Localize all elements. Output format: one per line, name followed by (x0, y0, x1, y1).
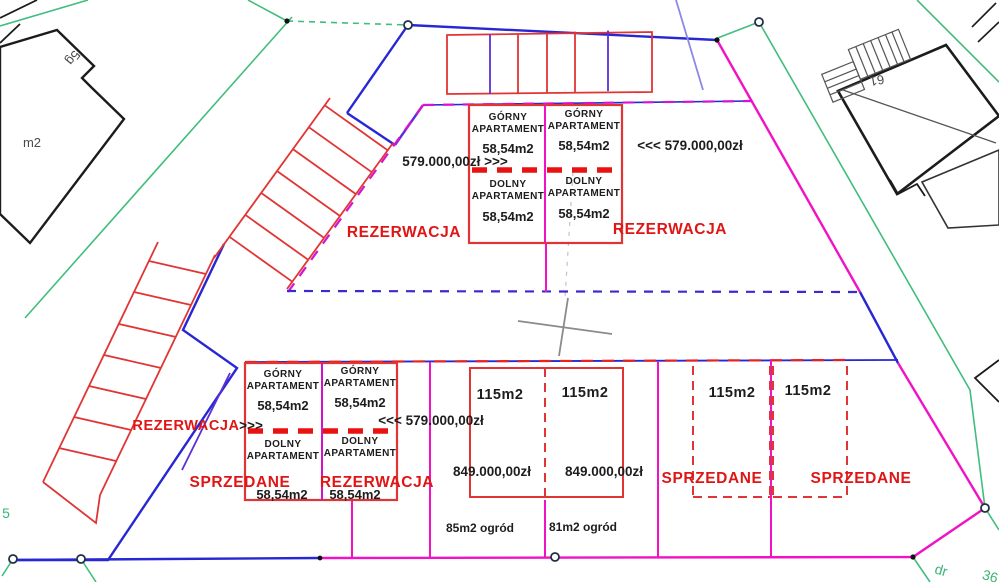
left-building-label: 5g (63, 48, 84, 69)
svg-text:APARTAMENT: APARTAMENT (548, 188, 621, 199)
svg-text:58,54m2: 58,54m2 (257, 398, 308, 413)
svg-text:GÓRNY: GÓRNY (565, 107, 604, 120)
svg-text:GÓRNY: GÓRNY (489, 110, 528, 123)
svg-text:APARTAMENT: APARTAMENT (324, 378, 397, 389)
row-house-plot2: 115m2 849.000,00zł 81m2 ogród (549, 385, 643, 534)
svg-text:GÓRNY: GÓRNY (264, 367, 303, 380)
svg-text:58,54m2: 58,54m2 (558, 138, 609, 153)
svg-text:APARTAMENT: APARTAMENT (548, 121, 621, 132)
site-plan-svg: 5g m2 61 5 dr 36 GÓRNY APARTAMENT 58,54m… (0, 0, 999, 582)
svg-text:DOLNY: DOLNY (490, 179, 527, 190)
svg-text:115m2: 115m2 (562, 385, 609, 401)
row-house-plot3: 115m2 SPRZEDANE (662, 385, 763, 487)
parcel-number-left: 5 (2, 505, 10, 521)
upper-duplex-left-unit: GÓRNY APARTAMENT 58,54m2 DOLNY APARTAMEN… (347, 110, 544, 241)
svg-text:APARTAMENT: APARTAMENT (324, 448, 397, 459)
svg-text:115m2: 115m2 (709, 385, 756, 401)
row-house-plot1: 115m2 849.000,00zł 85m2 ogród (446, 387, 531, 535)
svg-text:DOLNY: DOLNY (566, 176, 603, 187)
svg-text:58,54m2: 58,54m2 (334, 395, 385, 410)
neighbour-building-left (0, 0, 124, 243)
parcel-number-bottom: 36 (981, 566, 999, 582)
svg-text:SPRZEDANE: SPRZEDANE (811, 470, 912, 487)
lower-duplex-left-status-label: REZERWACJA (132, 418, 239, 434)
svg-text:APARTAMENT: APARTAMENT (247, 381, 320, 392)
svg-text:85m2 ogród: 85m2 ogród (446, 521, 514, 535)
svg-text:58,54m2: 58,54m2 (256, 487, 307, 502)
svg-text:58,54m2: 58,54m2 (329, 487, 380, 502)
svg-text:579.000,00zł >>>: 579.000,00zł >>> (402, 154, 508, 169)
svg-text:APARTAMENT: APARTAMENT (247, 451, 320, 462)
svg-text:REZERWACJA: REZERWACJA (613, 221, 727, 238)
lower-duplex-right-price: <<< 579.000,00zł (378, 413, 484, 428)
svg-text:REZERWACJA: REZERWACJA (347, 224, 461, 241)
svg-text:<<< 579.000,00zł: <<< 579.000,00zł (637, 138, 743, 153)
cadastral-site-plan: 5g m2 61 5 dr 36 GÓRNY APARTAMENT 58,54m… (0, 0, 999, 582)
lower-duplex-left-arrows: >>> (239, 418, 263, 433)
parking-row-top (447, 31, 652, 95)
svg-text:DOLNY: DOLNY (342, 436, 379, 447)
svg-text:115m2: 115m2 (785, 383, 832, 399)
svg-text:849.000,00zł: 849.000,00zł (565, 464, 643, 479)
svg-text:58,54m2: 58,54m2 (558, 206, 609, 221)
svg-text:DOLNY: DOLNY (265, 439, 302, 450)
svg-text:58,54m2: 58,54m2 (482, 209, 533, 224)
lower-duplex-left-unit: GÓRNY APARTAMENT 58,54m2 DOLNY APARTAMEN… (190, 367, 320, 502)
svg-text:SPRZEDANE: SPRZEDANE (662, 470, 763, 487)
row-house-plot4: 115m2 SPRZEDANE (785, 383, 912, 487)
svg-text:849.000,00zł: 849.000,00zł (453, 464, 531, 479)
svg-text:GÓRNY: GÓRNY (341, 364, 380, 377)
svg-text:APARTAMENT: APARTAMENT (472, 124, 545, 135)
right-building-label: 61 (869, 72, 886, 89)
svg-text:APARTAMENT: APARTAMENT (472, 191, 545, 202)
svg-text:115m2: 115m2 (477, 387, 524, 403)
svg-text:81m2 ogród: 81m2 ogród (549, 520, 617, 534)
road-label: dr (933, 561, 950, 580)
left-building-area-label: m2 (23, 135, 41, 150)
